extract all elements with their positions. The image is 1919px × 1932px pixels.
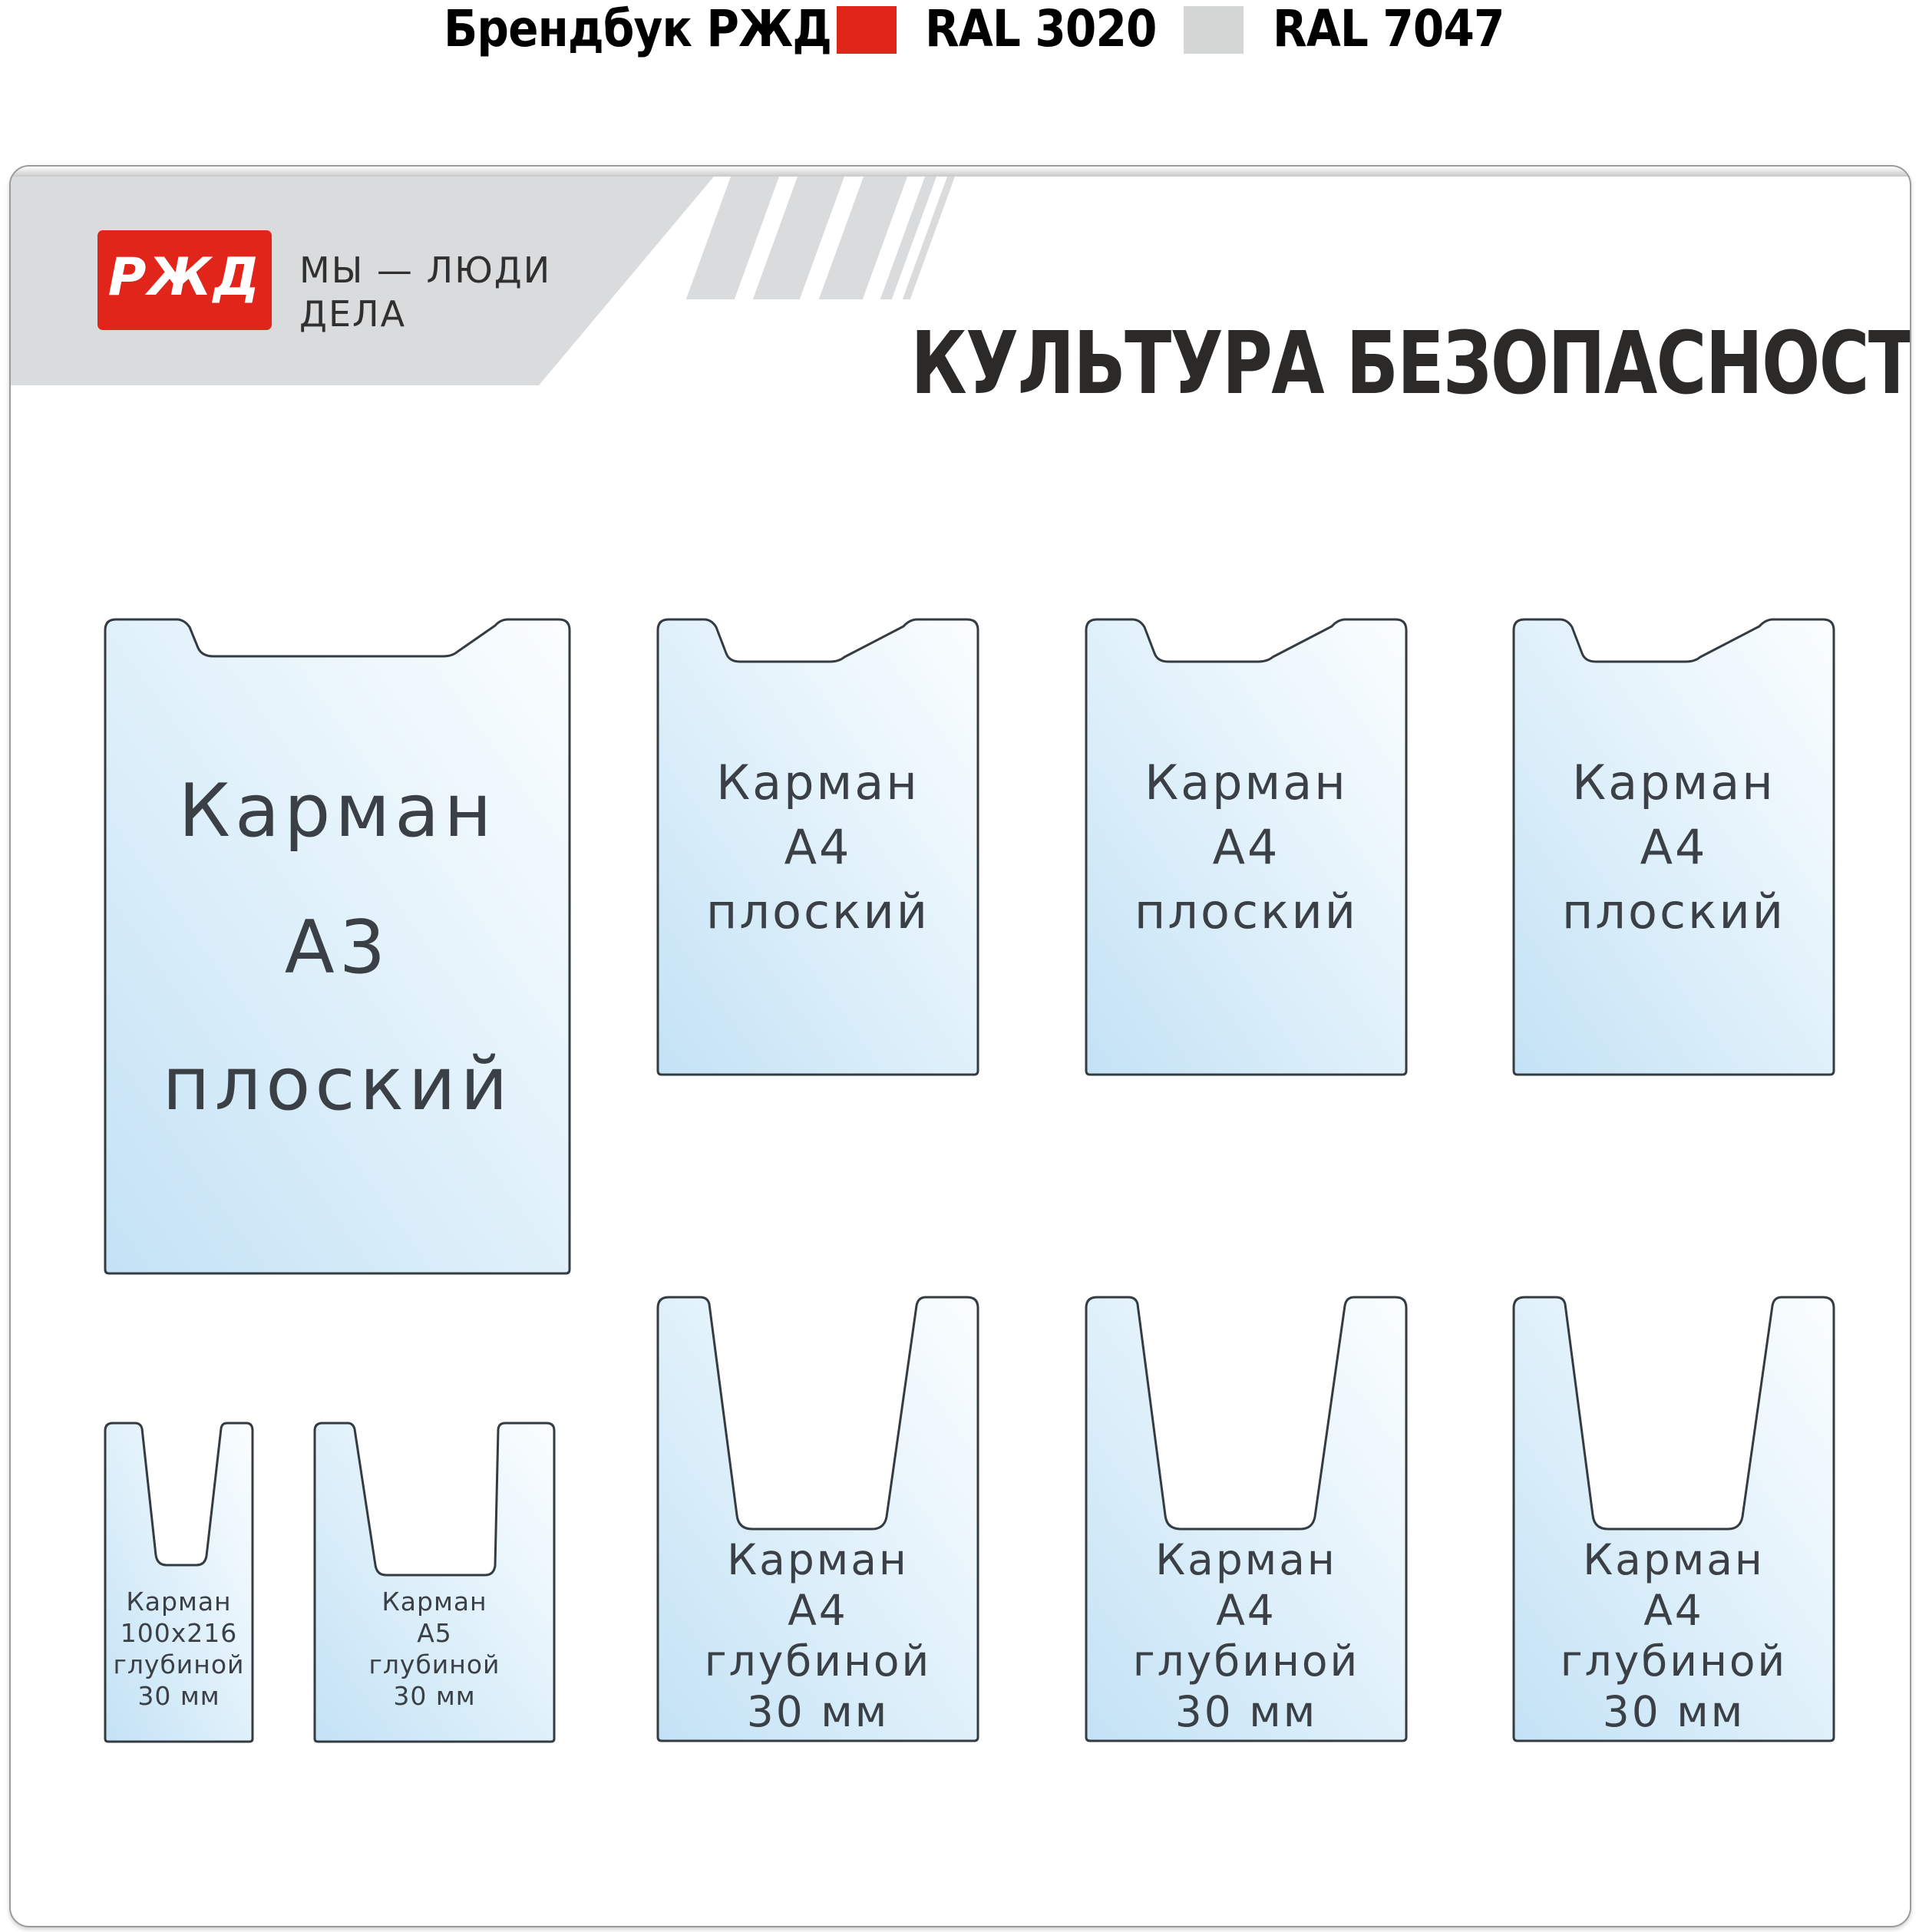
pocket-a4-deep-3: Карман А4 глубиной 30 мм [1514,1297,1834,1741]
info-board: РЖД МЫ — ЛЮДИ ДЕЛА КУЛЬТУРА БЕЗОПАСНОСТИ… [9,165,1911,1927]
pocket-label-line: А5 [315,1617,554,1649]
pocket-label-line: Карман [1514,1534,1834,1585]
pocket-label-line: 30 мм [315,1680,554,1712]
pocket-label-line: плоский [105,1016,570,1153]
pocket-label-line: Карман [1086,1534,1406,1585]
pocket-label-line: 30 мм [1086,1686,1406,1737]
pocket-a4-flat-3: Карман А4 плоский [1514,619,1834,1075]
ral-7047-swatch [1184,6,1244,54]
board-top-bevel [11,167,1910,177]
pocket-label-line: плоский [658,880,978,944]
pocket-label-line: глубиной [1086,1636,1406,1686]
pocket-label-line: 30 мм [658,1686,978,1737]
pocket-label-line: 30 мм [1514,1686,1834,1737]
tagline-line: ДЕЛА [299,292,551,336]
brandbook-legend: Брендбук РЖД RAL 3020 RAL 7047 [0,0,1919,69]
pocket-label-line: Карман [105,1586,253,1617]
board-title: КУЛЬТУРА БЕЗОПАСНОСТИ [778,320,1871,408]
pocket-label-line: Карман [658,751,978,815]
pocket-a4-flat-1: Карман А4 плоский [658,619,978,1075]
pocket-label-line: глубиной [658,1636,978,1686]
pocket-a4-flat-2: Карман А4 плоский [1086,619,1406,1075]
pocket-label-line: А4 [1086,1585,1406,1636]
pocket-label-line: Карман [1514,751,1834,815]
pocket-a4-deep-1: Карман А4 глубиной 30 мм [658,1297,978,1741]
pocket-label-line: А3 [105,880,570,1016]
pocket-label-line: Карман [1086,751,1406,815]
rzd-logo: РЖД [97,230,272,330]
pocket-label-line: Карман [105,743,570,880]
pocket-label-line: 30 мм [105,1680,253,1712]
pocket-label-line: глубиной [1514,1636,1834,1686]
page: Брендбук РЖД RAL 3020 RAL 7047 РЖД МЫ — … [0,0,1919,1932]
pocket-a3-flat: Карман А3 плоский [105,619,570,1273]
tagline-line: МЫ — ЛЮДИ [299,249,551,292]
ral-7047-label: RAL 7047 [1273,2,1536,57]
pocket-label-line: А4 [658,815,978,880]
rzd-logo-text: РЖД [97,230,272,325]
pocket-label-line: плоский [1086,880,1406,944]
pocket-label-line: Карман [658,1534,978,1585]
pocket-a5-deep: Карман А5 глубиной 30 мм [315,1423,554,1742]
pocket-label-line: А4 [1514,815,1834,880]
pocket-a4-deep-2: Карман А4 глубиной 30 мм [1086,1297,1406,1741]
pocket-label-line: плоский [1514,880,1834,944]
pocket-label-line: 100x216 [105,1617,253,1649]
ral-3020-swatch [837,6,897,54]
pocket-label-line: А4 [658,1585,978,1636]
pocket-label-line: Карман [315,1586,554,1617]
brandbook-title: Брендбук РЖД [444,2,884,57]
tagline: МЫ — ЛЮДИ ДЕЛА [299,249,551,336]
ral-3020-label: RAL 3020 [925,2,1188,57]
pocket-100x216-deep: Карман 100x216 глубиной 30 мм [105,1423,253,1742]
pocket-label-line: глубиной [105,1649,253,1680]
pocket-label-line: А4 [1514,1585,1834,1636]
pocket-label-line: А4 [1086,815,1406,880]
pocket-label-line: глубиной [315,1649,554,1680]
